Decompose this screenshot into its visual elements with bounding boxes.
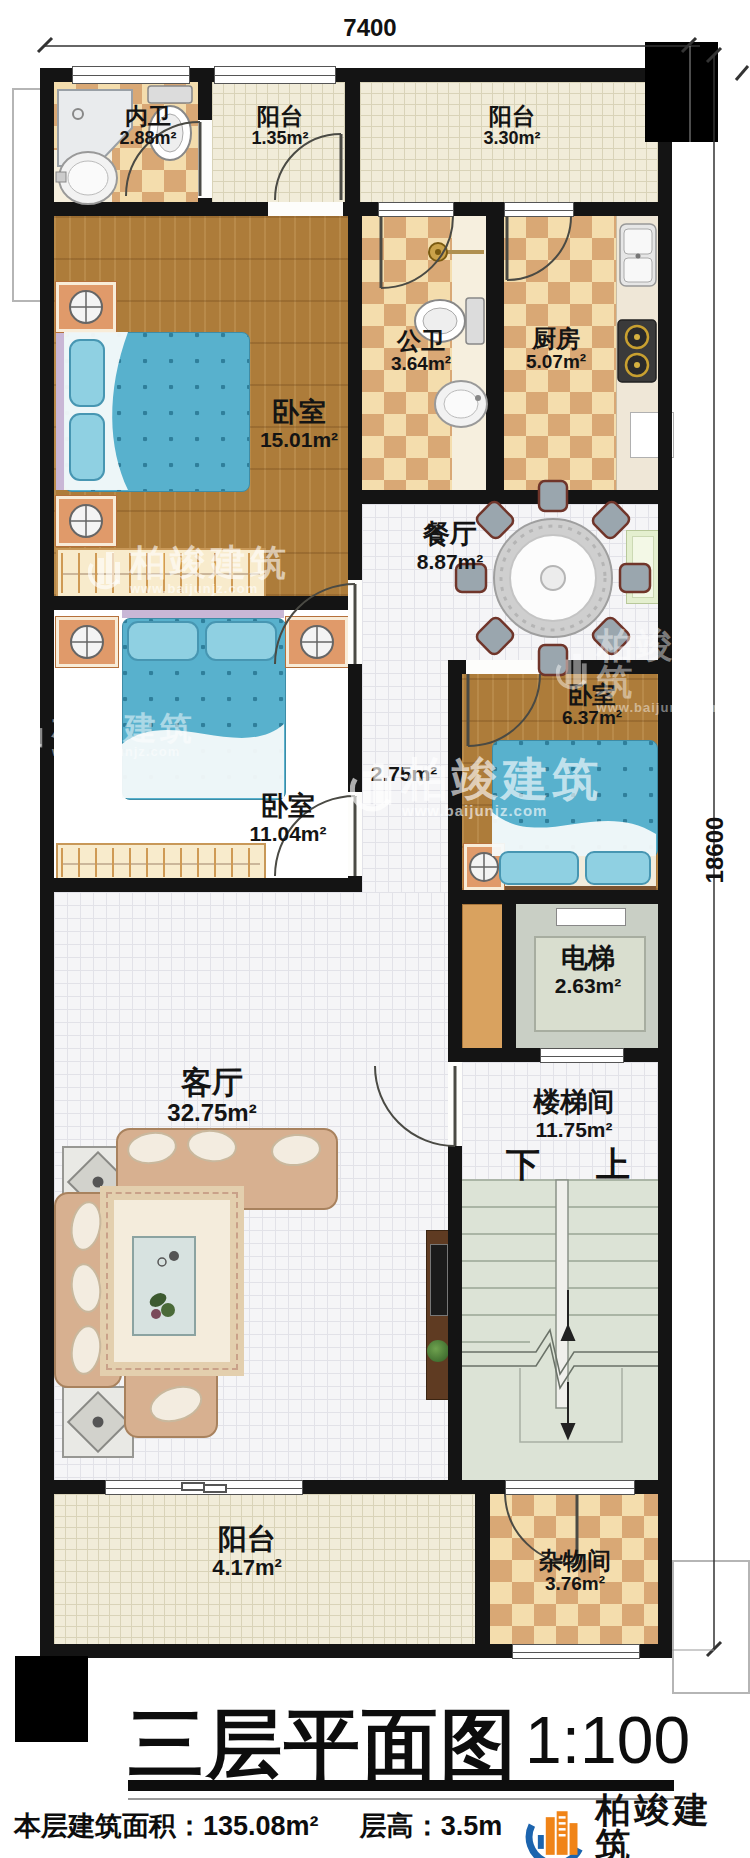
wall: [475, 1494, 490, 1644]
door-opening: [448, 1062, 462, 1146]
door-opening: [348, 580, 362, 664]
wardrobe-bedroom-2: [56, 843, 266, 882]
room-label-bedroom-3: 卧室6.37m²: [562, 682, 622, 729]
column-marker: [645, 42, 718, 142]
nightstand: [286, 617, 348, 667]
dimension-width: 7400: [343, 14, 396, 42]
hall-cabinet: [462, 904, 504, 1050]
room-label-bath-public: 公卫3.64m²: [391, 328, 451, 375]
room-label-stairwell: 楼梯间11.75m²: [534, 1088, 615, 1141]
window: [504, 202, 574, 217]
window: [214, 66, 336, 84]
nightstand: [56, 282, 116, 332]
title-underline: [128, 1780, 674, 1791]
room-label-bedroom-2: 卧室11.04m²: [249, 792, 326, 845]
wall: [658, 68, 672, 1658]
window: [72, 66, 190, 84]
floor-bath-public-marble: [452, 216, 486, 490]
wall: [40, 202, 268, 216]
wall: [462, 1048, 540, 1062]
wall: [40, 596, 348, 610]
room-label-bedroom-1: 卧室15.01m²: [260, 398, 338, 451]
wall: [362, 490, 658, 504]
room-label-balcony-2: 阳台3.30m²: [483, 104, 540, 149]
floor-dining: [362, 504, 658, 660]
wall: [502, 904, 516, 1048]
nightstand: [56, 617, 118, 667]
wall: [348, 216, 362, 580]
footer-info: 本层建筑面积：135.08m² 层高：3.5m: [14, 1808, 502, 1844]
tv: [430, 1244, 448, 1316]
bed-1-headboard: [56, 332, 64, 490]
stair-flight: [462, 1180, 658, 1480]
wall: [448, 1146, 462, 1480]
elevator-door: [540, 1048, 624, 1063]
floorplan-page: { "plan": { "dim_width": "7400", "dim_he…: [0, 0, 750, 1858]
wall: [40, 1480, 105, 1494]
window: [505, 1480, 635, 1495]
wall: [622, 1048, 658, 1062]
wall: [540, 660, 658, 674]
bed-2-mattress: [122, 618, 286, 800]
elevator-top-slot: [556, 908, 626, 926]
footer-floor-height: 层高：3.5m: [360, 1811, 503, 1841]
room-label-elevator: 电梯2.63m²: [555, 944, 622, 997]
sliding-door: [105, 1480, 303, 1495]
page-scale: 1:100: [525, 1702, 690, 1778]
stair-up-label: 上: [596, 1142, 630, 1188]
exterior-ledge-bottomright: [672, 1560, 750, 1694]
door-opening: [348, 792, 362, 876]
plant-icon: [427, 1340, 449, 1362]
wall: [40, 68, 54, 1658]
dining-cabinet: [626, 530, 660, 604]
nightstand: [56, 496, 116, 546]
coffee-table: [132, 1236, 196, 1336]
wall: [40, 878, 362, 892]
stair-down-label: 下: [506, 1142, 540, 1188]
wall: [301, 1480, 505, 1494]
wardrobe-bedroom-1: [56, 548, 266, 598]
window: [378, 202, 454, 217]
bed-3-pillow-shelf: [492, 856, 656, 886]
room-label-bath-private: 内卫2.88m²: [119, 104, 176, 149]
wall: [486, 216, 504, 490]
bed-2-headboard: [122, 610, 284, 618]
wall: [448, 674, 462, 1062]
dimension-height: 18600: [701, 800, 731, 900]
room-label-balcony-3: 阳台4.17m²: [212, 1524, 282, 1580]
column-marker: [15, 1656, 88, 1742]
bed-3-mattress: [492, 740, 658, 858]
door-opening: [268, 202, 343, 216]
nightstand: [464, 844, 504, 890]
wall: [343, 202, 378, 216]
door-opening: [198, 120, 212, 198]
wall: [348, 664, 362, 792]
room-label-dining: 餐厅8.87m²: [417, 520, 484, 573]
wall: [448, 660, 466, 674]
brand-logo-icon: [522, 1807, 587, 1858]
room-label-living: 客厅32.75m²: [167, 1066, 256, 1126]
brand-name: 柏竣建筑: [595, 1792, 750, 1858]
room-label-storage: 杂物间3.76m²: [539, 1548, 611, 1595]
room-label-balcony-1: 阳台1.35m²: [251, 104, 308, 149]
wall: [572, 202, 672, 216]
wall: [345, 82, 360, 216]
door-opening: [466, 660, 540, 674]
bed-1-mattress: [64, 332, 250, 492]
wall: [448, 890, 658, 904]
window: [512, 1644, 640, 1659]
room-label-kitchen: 厨房5.07m²: [526, 326, 586, 373]
footer-area: 本层建筑面积：135.08m²: [14, 1811, 319, 1841]
wall: [198, 82, 212, 120]
wall: [633, 1480, 672, 1494]
room-label-corridor: 2.75m²: [371, 762, 438, 785]
wall: [452, 202, 504, 216]
brand-logo: 柏竣建筑 www.baijunjz.com: [522, 1792, 750, 1858]
